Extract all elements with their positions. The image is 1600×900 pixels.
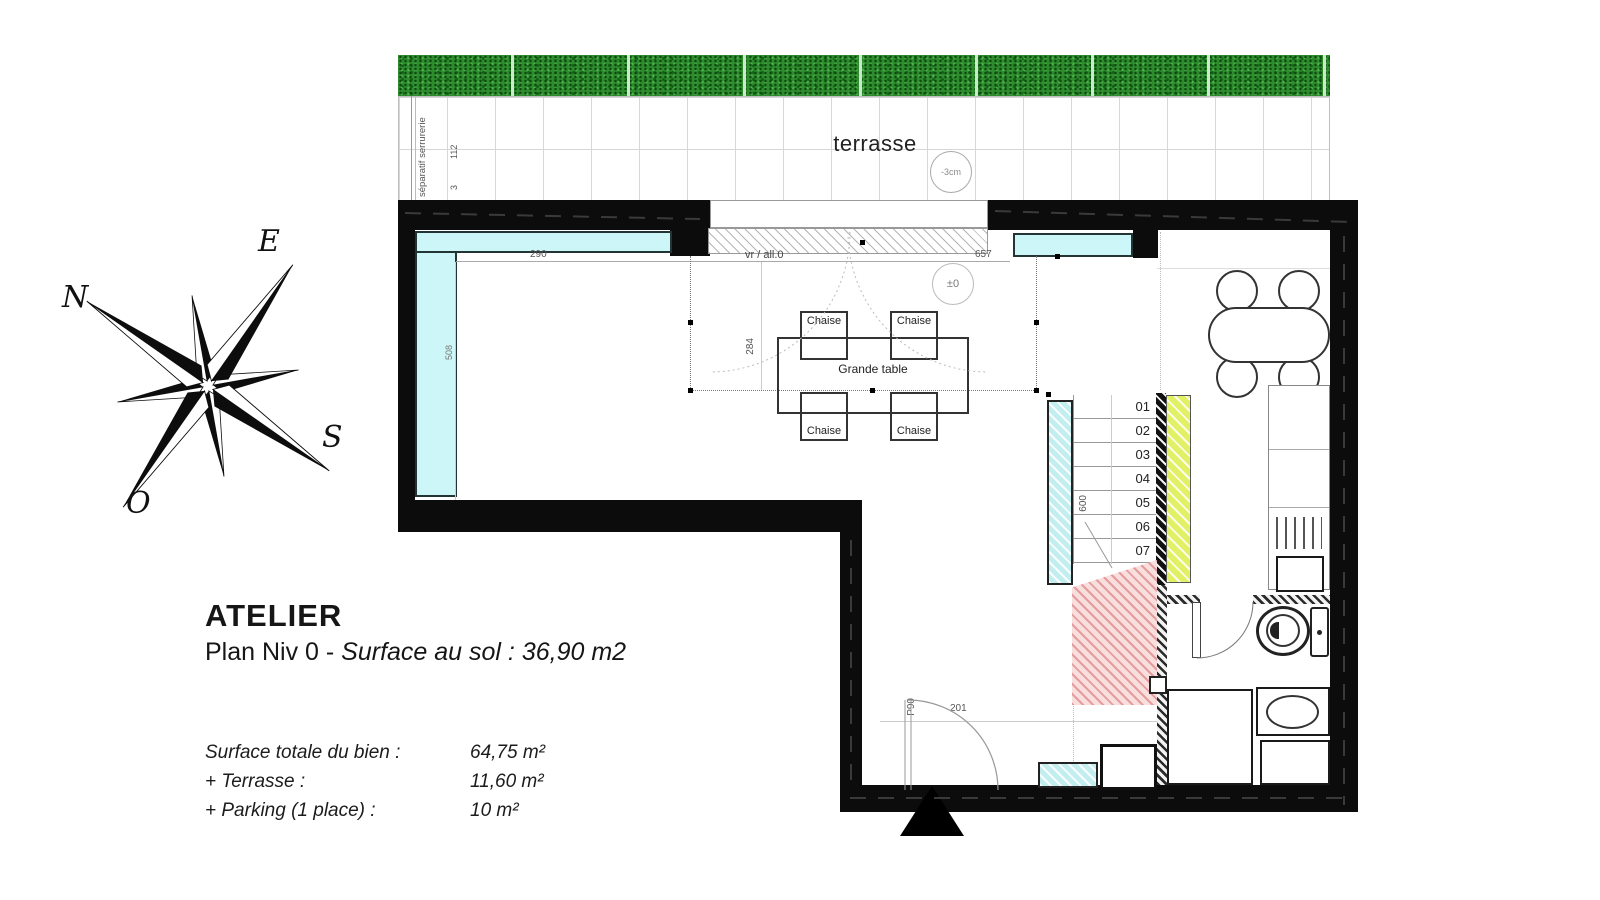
terrace-dim-112: 112 xyxy=(449,125,459,159)
stair-step: 01 xyxy=(1074,395,1156,419)
dining-table xyxy=(1208,307,1330,363)
dim-657: 657 xyxy=(975,249,992,260)
kitchen-sink xyxy=(1276,556,1324,592)
surface-row-parking: + Parking (1 place) : 10 m² xyxy=(205,800,625,822)
low-window-band xyxy=(1038,762,1098,788)
dim-line-top xyxy=(456,261,1010,262)
dim-line-table xyxy=(761,262,762,390)
dim-508: 508 xyxy=(444,345,454,360)
surface-value: 10 m² xyxy=(470,800,519,822)
opening-threshold xyxy=(710,200,988,228)
window-band-left xyxy=(415,251,457,497)
grande-table: Grande table xyxy=(777,337,969,414)
bathroom-cabinet xyxy=(1260,740,1330,785)
stair-glass-screen xyxy=(1047,400,1073,585)
stair-center-line xyxy=(1111,395,1112,564)
terrace-level-badge: -3cm xyxy=(930,151,972,193)
dish-rack-icon xyxy=(1276,517,1322,549)
chair-label: Chaise xyxy=(897,315,931,327)
surface-value: 11,60 m² xyxy=(470,771,544,793)
surface-summary: Surface totale du bien : 64,75 m² + Terr… xyxy=(205,742,625,829)
page-title: ATELIER xyxy=(205,598,342,634)
chair-label: Chaise xyxy=(807,425,841,437)
toilet-button xyxy=(1317,630,1322,635)
stair-step: 02 xyxy=(1074,419,1156,443)
compass-east-label: E xyxy=(258,224,280,259)
level-badge-zero: ±0 xyxy=(932,263,974,305)
bathroom-door-leaf xyxy=(1192,602,1201,658)
compass-south-label: S xyxy=(322,420,343,455)
grande-table-label: Grande table xyxy=(838,362,907,376)
wall-opening-jamb-right xyxy=(1133,230,1158,258)
plan-subtitle: Plan Niv 0 - Surface au sol : 36,90 m2 xyxy=(205,638,626,667)
surface-label: + Parking (1 place) : xyxy=(205,800,470,822)
ref-dot xyxy=(1034,320,1039,325)
dim-284: 284 xyxy=(745,338,756,355)
bathroom-door-arc xyxy=(1197,602,1253,658)
toilet-flush-icon xyxy=(1270,622,1279,639)
counter-division xyxy=(1269,449,1329,450)
chair-label: Chaise xyxy=(807,315,841,327)
dim-201: 201 xyxy=(950,703,967,714)
dim-line-left-wall xyxy=(455,262,456,500)
plan-subtitle-surface: Surface au sol : 36,90 m2 xyxy=(341,638,626,666)
wall-opening-jamb-left xyxy=(670,228,710,256)
toilet-cistern xyxy=(1310,607,1329,657)
compass-west-label: O xyxy=(126,486,151,521)
wall-junction-box xyxy=(1149,676,1167,694)
terrace-separator-label: séparatif serrurerie xyxy=(417,99,428,197)
compass-north-label: N xyxy=(62,280,88,315)
dim-line-door xyxy=(880,721,1157,722)
understair-zone xyxy=(1072,560,1157,705)
wall-top-right xyxy=(988,200,1358,230)
surface-label: + Terrasse : xyxy=(205,771,470,793)
dim-290: 290 xyxy=(530,249,547,260)
guide-kitchen-h xyxy=(1157,268,1330,269)
wall-top-left xyxy=(398,200,710,230)
guide-dotted-kitchen xyxy=(1160,232,1161,390)
terrace-separator-line xyxy=(411,96,412,201)
wall-right xyxy=(1330,228,1358,812)
wall-left-lower xyxy=(840,532,862,785)
ref-dot xyxy=(1055,254,1060,259)
surface-row-terrasse: + Terrasse : 11,60 m² xyxy=(205,771,625,793)
wall-bottom xyxy=(840,785,1358,812)
terrace-separator-line-2 xyxy=(415,96,416,201)
stair-step: 07 xyxy=(1074,539,1156,563)
counter-division xyxy=(1269,507,1329,508)
wall-bathroom-top-b xyxy=(1253,595,1330,604)
window-band-right xyxy=(1013,233,1133,257)
dim-600: 600 xyxy=(1078,495,1089,512)
shower-unit xyxy=(1167,689,1253,785)
utility-box xyxy=(1100,744,1157,790)
hedge-strip xyxy=(398,55,1330,96)
stair-step: 03 xyxy=(1074,443,1156,467)
ref-dot xyxy=(688,320,693,325)
compass-rose-icon xyxy=(48,218,368,538)
washbasin-bowl xyxy=(1266,695,1319,729)
surface-label: Surface totale du bien : xyxy=(205,742,470,764)
ref-dot xyxy=(1046,392,1051,397)
stair-step: 04 xyxy=(1074,467,1156,491)
terrace-dim-3: 3 xyxy=(449,176,459,190)
wall-bottom-upper-room xyxy=(398,500,862,532)
floor-plan-page: séparatif serrurerie 112 3 terrasse -3cm… xyxy=(0,0,1600,900)
ref-dot xyxy=(1034,388,1039,393)
stair-core-strip xyxy=(1166,395,1191,583)
dining-chair xyxy=(1278,270,1320,312)
compass-secondary-arms xyxy=(109,287,308,486)
plan-subtitle-plain: Plan Niv 0 - xyxy=(205,638,341,666)
wall-left-upper xyxy=(398,230,415,502)
terrace-label: terrasse xyxy=(800,131,950,157)
door-label: P90 xyxy=(906,698,917,716)
ref-dot xyxy=(860,240,865,245)
ref-dot xyxy=(688,388,693,393)
stair-step: 06 xyxy=(1074,515,1156,539)
surface-value: 64,75 m² xyxy=(470,742,545,764)
wall-stair-divider xyxy=(1156,393,1166,585)
surface-row-total: Surface totale du bien : 64,75 m² xyxy=(205,742,625,764)
dining-chair xyxy=(1216,270,1258,312)
chair-label: Chaise xyxy=(897,425,931,437)
opening-label: vr / all.0 xyxy=(745,249,784,261)
staircase: 01 02 03 04 05 06 07 xyxy=(1073,395,1156,564)
